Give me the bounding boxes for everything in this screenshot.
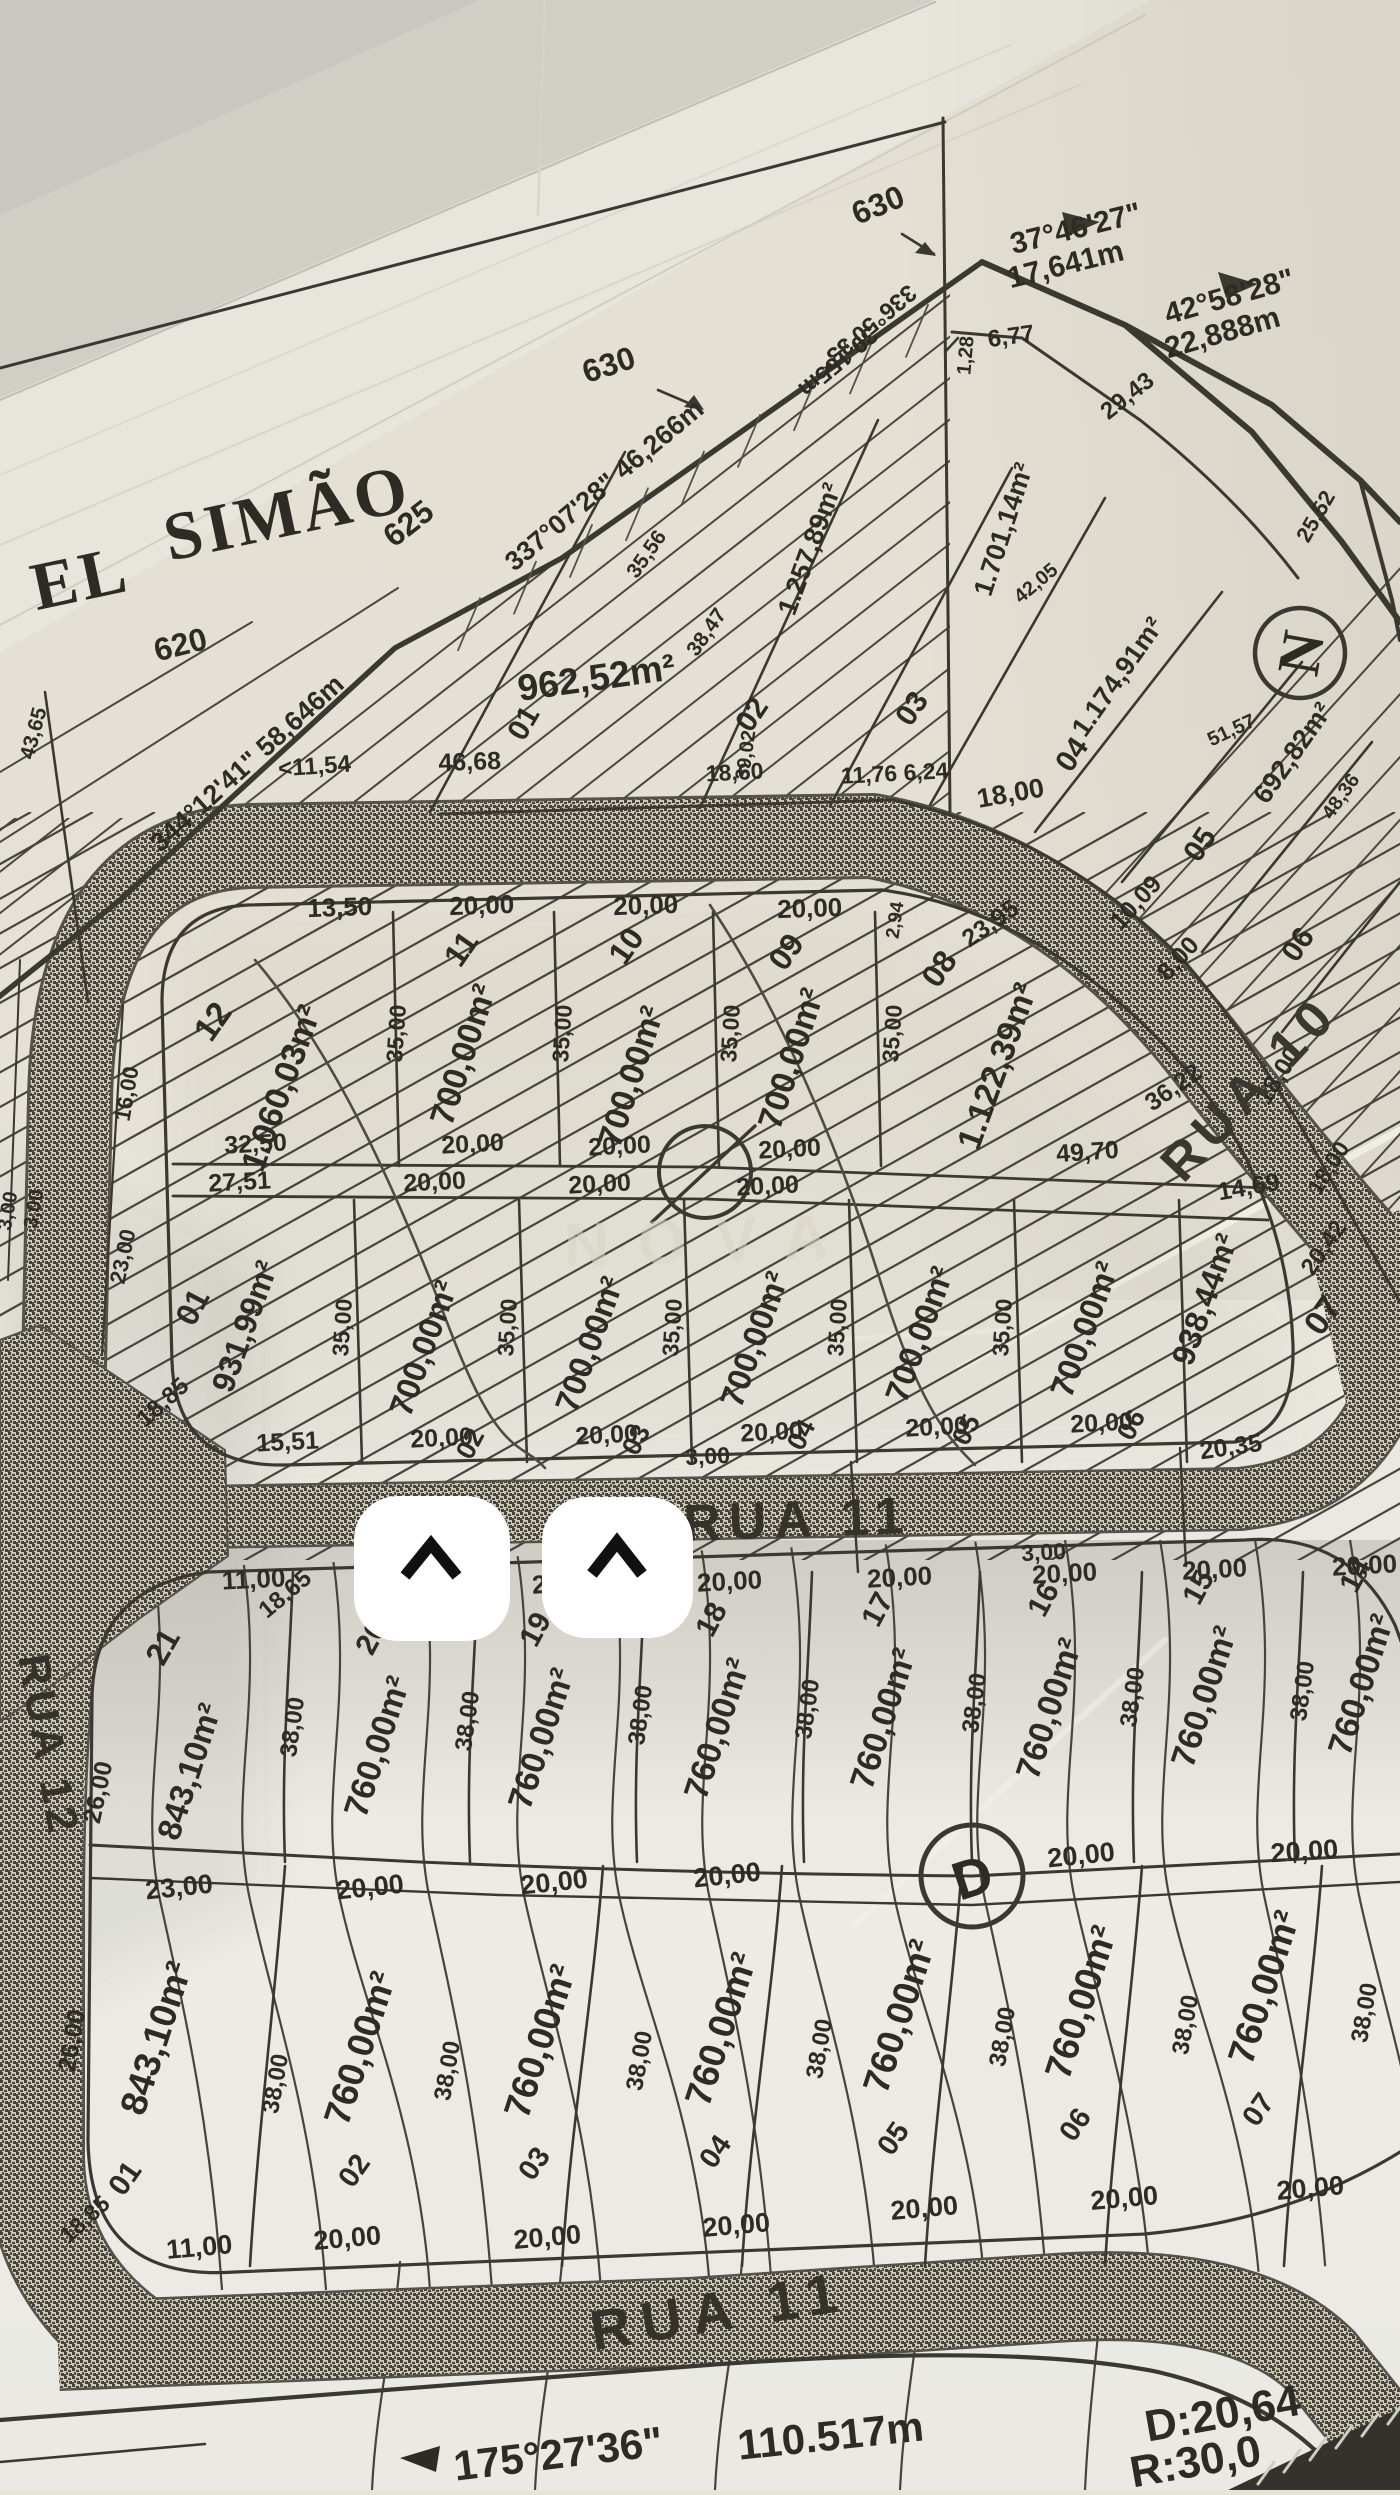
svg-text:20,00: 20,00 — [696, 1564, 763, 1597]
svg-text:20,00: 20,00 — [740, 1416, 804, 1447]
svg-text:RUA 11: RUA 11 — [682, 1487, 912, 1553]
svg-text:11,00: 11,00 — [221, 1562, 286, 1595]
svg-text:20,00: 20,00 — [777, 892, 843, 924]
svg-text:49,70: 49,70 — [1055, 1136, 1119, 1168]
svg-text:15,51: 15,51 — [256, 1426, 320, 1457]
svg-text:20,00: 20,00 — [1089, 2180, 1159, 2216]
svg-text:35,00: 35,00 — [492, 1298, 522, 1357]
svg-text:32,50: 32,50 — [224, 1128, 288, 1159]
svg-text:20,00: 20,00 — [568, 1168, 632, 1199]
svg-text:35,00: 35,00 — [715, 1004, 745, 1063]
svg-text:20,00: 20,00 — [410, 1422, 474, 1453]
svg-text:20,00: 20,00 — [512, 2219, 582, 2255]
svg-text:20,00: 20,00 — [736, 1170, 800, 1201]
svg-text:35,00: 35,00 — [822, 1298, 852, 1357]
svg-text:3,00: 3,00 — [685, 1442, 731, 1470]
svg-text:20,00: 20,00 — [403, 1166, 467, 1197]
svg-text:20,00: 20,00 — [1270, 1834, 1340, 1869]
svg-text:27,51: 27,51 — [208, 1166, 272, 1197]
svg-text:35,00: 35,00 — [877, 1004, 907, 1063]
svg-text:20,00: 20,00 — [701, 2207, 771, 2243]
svg-text:20,00: 20,00 — [575, 1419, 639, 1450]
svg-text:20,00: 20,00 — [441, 1128, 505, 1159]
svg-text:20,00: 20,00 — [905, 1411, 969, 1442]
svg-text:11,00: 11,00 — [165, 2229, 233, 2265]
svg-text:35,00: 35,00 — [547, 1004, 577, 1063]
svg-text:35,00: 35,00 — [657, 1298, 687, 1357]
svg-text:20,00: 20,00 — [889, 2190, 959, 2226]
svg-text:20,00: 20,00 — [866, 1560, 933, 1593]
svg-text:20,00: 20,00 — [449, 889, 515, 921]
svg-text:35,00: 35,00 — [987, 1298, 1017, 1357]
svg-text:20,00: 20,00 — [613, 889, 679, 921]
svg-text:20,00: 20,00 — [588, 1130, 652, 1161]
svg-text:13,50: 13,50 — [307, 891, 373, 923]
svg-text:<11,54: <11,54 — [277, 750, 352, 782]
svg-text:20,00: 20,00 — [1275, 2170, 1345, 2206]
svg-text:35,00: 35,00 — [327, 1298, 357, 1357]
svg-text:1,28: 1,28 — [953, 335, 978, 376]
svg-text:20,00: 20,00 — [312, 2220, 382, 2256]
svg-text:35,00: 35,00 — [381, 1004, 411, 1063]
svg-text:20,00: 20,00 — [1070, 1407, 1134, 1438]
svg-text:N O V A: N O V A — [563, 1202, 836, 1280]
svg-text:46,68: 46,68 — [438, 747, 502, 777]
svg-text:20,00: 20,00 — [758, 1133, 822, 1164]
